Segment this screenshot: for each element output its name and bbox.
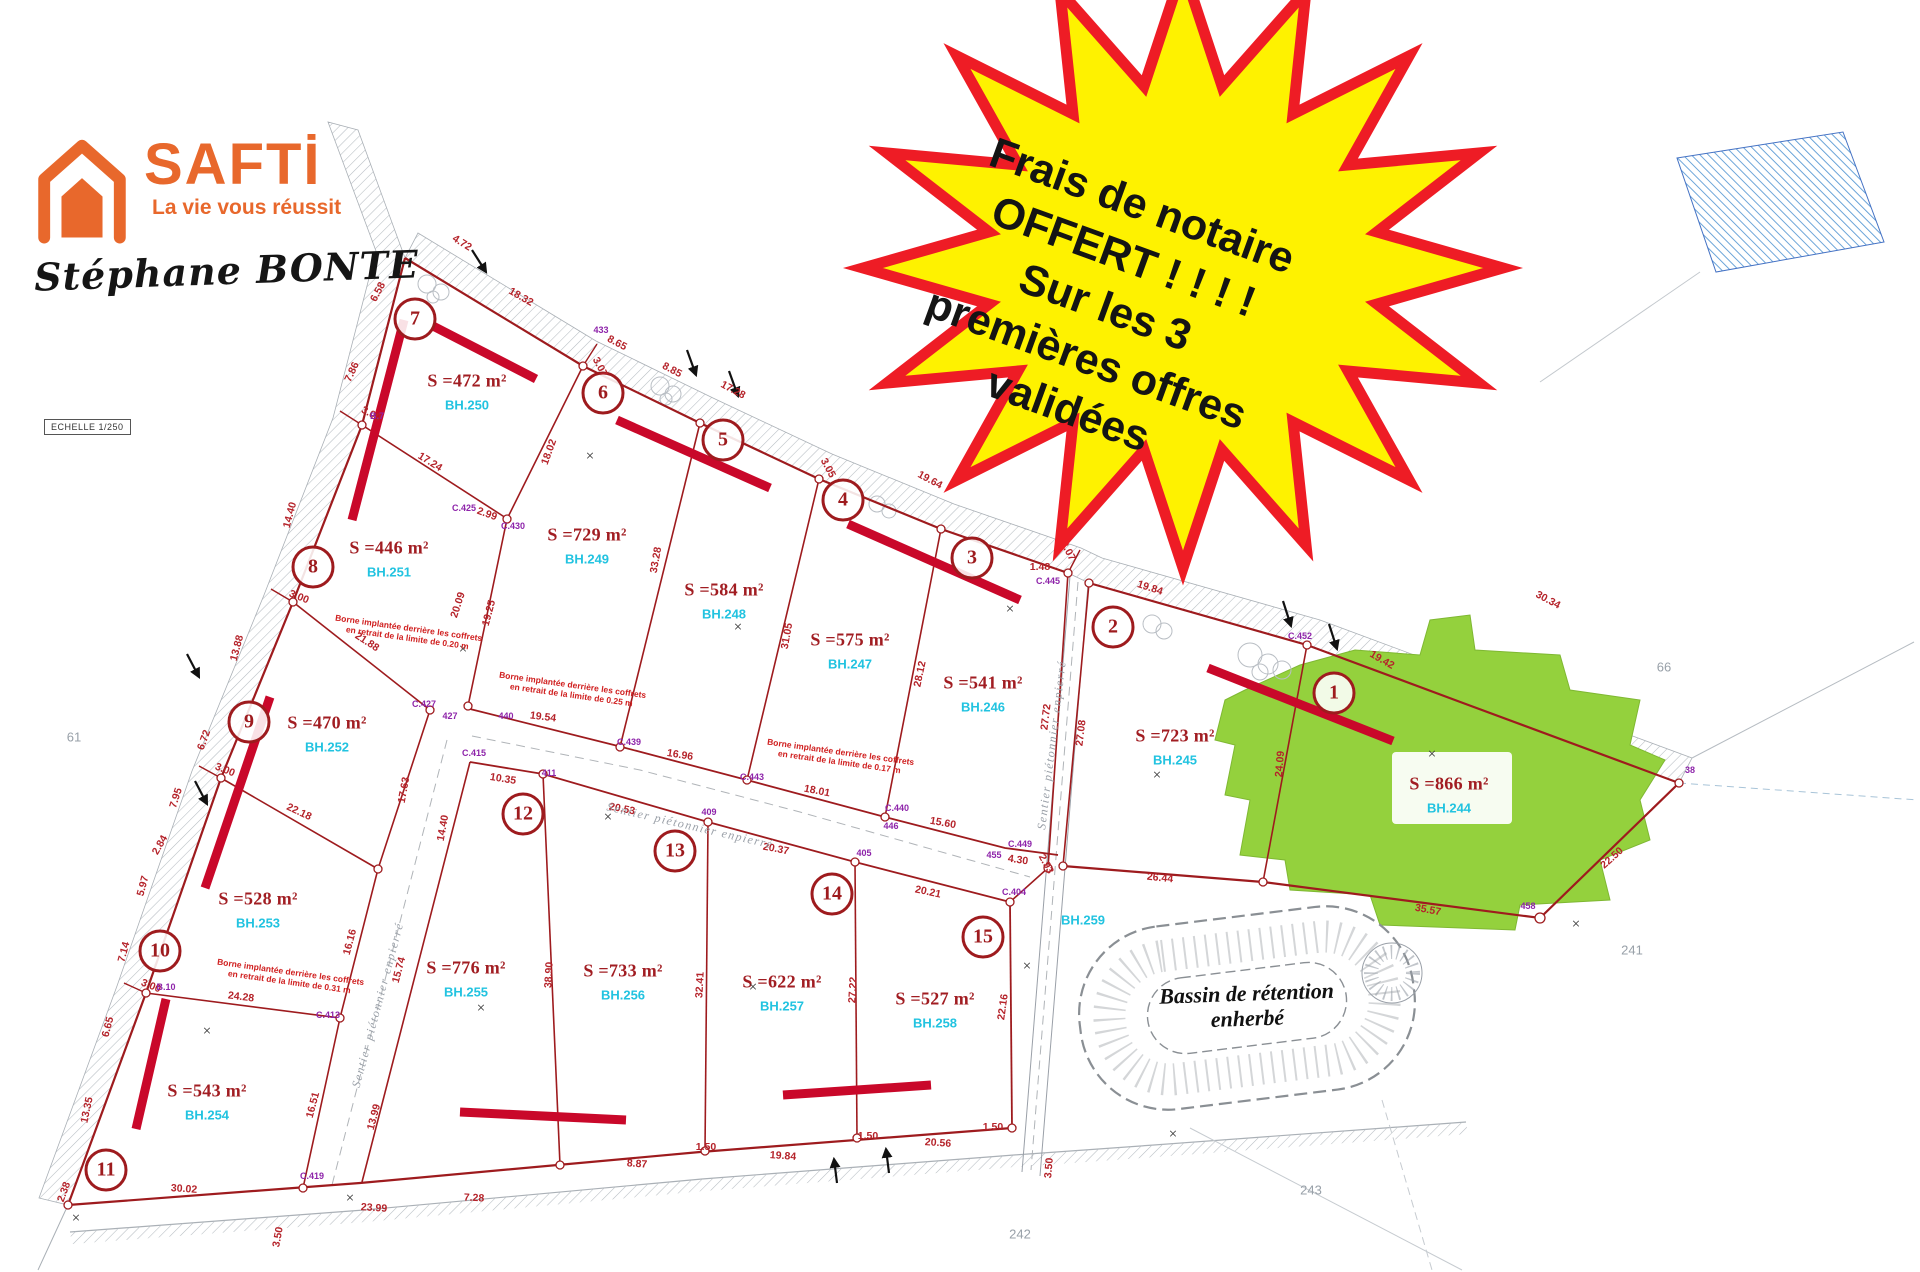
brand-name: SAFTİ xyxy=(144,136,341,194)
road-faint-line xyxy=(1540,272,1700,382)
green-lot-label-hole xyxy=(1392,752,1512,824)
scale-box: ECHELLE 1/250 xyxy=(44,419,131,435)
blue-hatched-zone xyxy=(1677,132,1884,272)
brand-tagline: La vie vous réussit xyxy=(152,196,341,220)
sentier-centerline xyxy=(472,736,1030,877)
road-corner-line xyxy=(38,1205,68,1270)
dashed-extension xyxy=(1679,783,1918,800)
parcel-line xyxy=(1190,1128,1462,1270)
listing-image: 1S =866 m²BH.2442S =723 m²BH.2453S =541 … xyxy=(0,0,1920,1272)
road-bottom-hatch xyxy=(70,1122,1468,1244)
boundary-extension xyxy=(1692,642,1914,758)
safti-logo: SAFTİ La vie vous réussit xyxy=(26,136,341,249)
bassin-label: Bassin de rétention enherbé xyxy=(1159,978,1335,1035)
safti-house-icon xyxy=(26,136,138,249)
safti-logo-text: SAFTİ La vie vous réussit xyxy=(144,136,341,220)
sentier-grey-lines xyxy=(1022,576,1088,1176)
sentier-centerline-left xyxy=(332,740,447,1185)
